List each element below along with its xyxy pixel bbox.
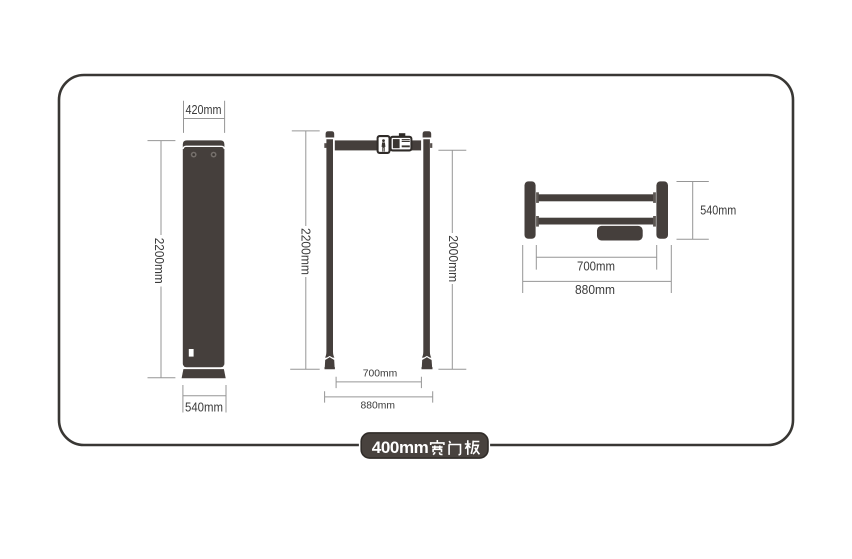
svg-text:540mm: 540mm [185, 401, 223, 415]
svg-text:2200mm: 2200mm [152, 238, 166, 284]
svg-text:880mm: 880mm [575, 283, 615, 297]
svg-text:400mm: 400mm [372, 438, 429, 457]
svg-text:2200mm: 2200mm [298, 228, 312, 275]
svg-text:540mm: 540mm [700, 204, 736, 218]
svg-text:420mm: 420mm [186, 103, 222, 117]
svg-text:700mm: 700mm [577, 260, 615, 274]
svg-text:700mm: 700mm [363, 369, 398, 380]
svg-text:2000mm: 2000mm [446, 235, 460, 282]
svg-text:880mm: 880mm [361, 400, 396, 411]
